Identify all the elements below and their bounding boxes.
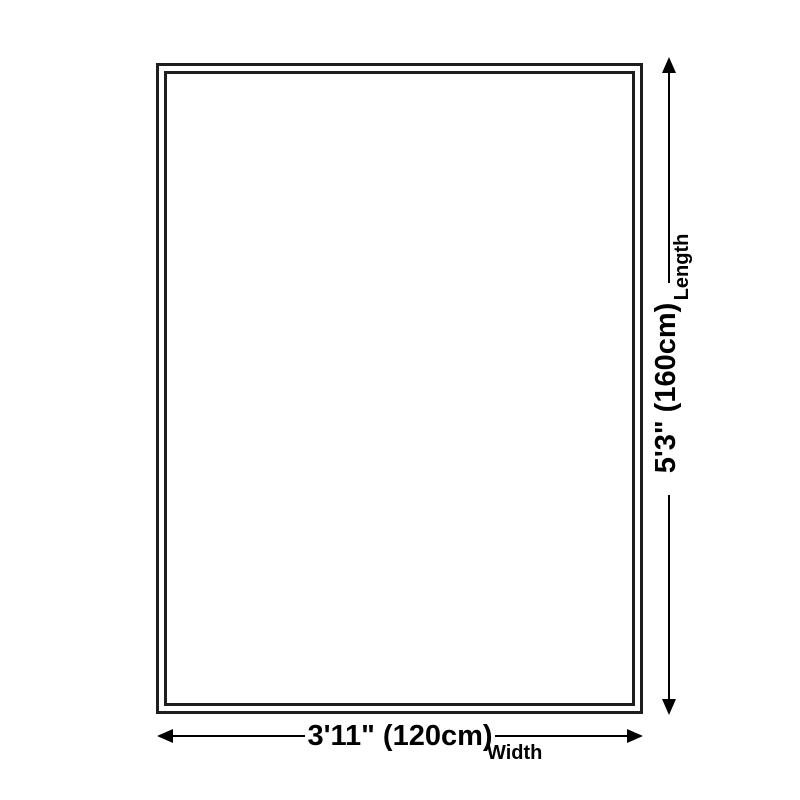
arrow-down-icon <box>662 699 676 715</box>
width-arrow-right-segment <box>495 735 629 737</box>
rug-outline-inner-border <box>164 71 635 706</box>
width-label: Width <box>487 741 597 765</box>
rug-dimension-diagram: Length 5'3" (160cm) 3'11" (120cm) Width <box>0 0 800 800</box>
length-value: 5'3" (160cm) <box>646 238 686 538</box>
length-arrow-lower-segment <box>668 495 670 701</box>
arrow-right-icon <box>627 729 643 743</box>
arrow-up-icon <box>662 57 676 73</box>
rug-outline-outer-border <box>156 63 643 714</box>
